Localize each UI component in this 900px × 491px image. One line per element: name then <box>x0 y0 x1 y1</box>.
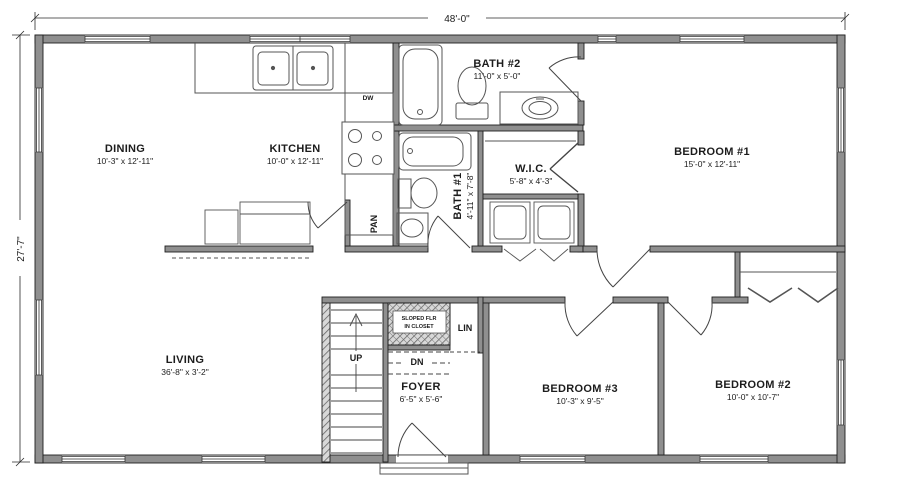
svg-text:10'-0" x 10'-7": 10'-0" x 10'-7" <box>727 392 779 402</box>
sloped-floor-label-line1: SLOPED FLR <box>402 316 437 322</box>
svg-text:W.I.C.: W.I.C. <box>515 163 547 175</box>
svg-text:PAN: PAN <box>369 215 379 233</box>
overall-width-dimension: 48'-0" <box>444 14 470 25</box>
room-label-pantry: PAN <box>369 215 379 233</box>
linen-label: LIN <box>458 323 473 333</box>
overall-depth-dimension: 27'-7" <box>16 236 27 262</box>
bath2-door <box>549 57 581 101</box>
svg-text:DINING: DINING <box>105 143 145 155</box>
bedroom1-door <box>597 249 650 287</box>
room-label-wic: W.I.C. 5'-8" x 4'-3" <box>510 163 553 186</box>
door-swings <box>308 57 712 457</box>
svg-text:4'-11" x 7'-8": 4'-11" x 7'-8" <box>465 173 475 220</box>
svg-text:15'-0" x 12'-11": 15'-0" x 12'-11" <box>684 159 740 169</box>
svg-text:10'-3" x 9'-5": 10'-3" x 9'-5" <box>556 396 604 406</box>
stair-side-wall <box>322 303 330 462</box>
svg-text:FOYER: FOYER <box>401 381 440 393</box>
bedroom3-door <box>565 302 613 336</box>
dryer <box>534 202 574 243</box>
room-label-bedroom3: BEDROOM #3 10'-3" x 9'-5" <box>542 383 618 406</box>
dining-hutch <box>240 202 310 244</box>
bath2-fixtures <box>399 45 578 125</box>
svg-text:6'-5" x 5'-6": 6'-5" x 5'-6" <box>400 394 443 404</box>
laundry-bifold-doors <box>504 249 568 261</box>
room-label-foyer: FOYER 6'-5" x 5'-6" <box>400 381 443 404</box>
floor-plan-drawing: 48'-0" 27'-7" <box>0 0 900 491</box>
front-door-opening <box>396 455 448 462</box>
svg-text:LIVING: LIVING <box>166 354 204 366</box>
stove <box>342 122 394 174</box>
svg-text:BEDROOM #1: BEDROOM #1 <box>674 146 750 158</box>
closet-bifold-doors <box>748 288 838 302</box>
stairs-up <box>331 310 382 453</box>
room-label-bath2: BATH #2 11'-0" x 5'-0" <box>473 58 520 81</box>
svg-text:BATH #1: BATH #1 <box>452 172 464 219</box>
room-label-bath1: BATH #1 4'-11" x 7'-8" <box>452 172 475 219</box>
svg-text:10'-3" x 12'-11": 10'-3" x 12'-11" <box>97 156 153 166</box>
dn-label: DN <box>411 357 424 367</box>
pantry-door <box>308 202 347 228</box>
bedroom2-closet <box>740 272 838 302</box>
sloped-floor-label-line2: IN CLOSET <box>404 324 434 330</box>
svg-text:BATH #2: BATH #2 <box>473 58 520 70</box>
svg-text:BEDROOM #2: BEDROOM #2 <box>715 379 791 391</box>
svg-text:BEDROOM #3: BEDROOM #3 <box>542 383 618 395</box>
svg-text:10'-0" x 12'-11": 10'-0" x 12'-11" <box>267 156 323 166</box>
bath1-door <box>428 216 470 248</box>
floor-plan-page: 48'-0" 27'-7" <box>0 0 900 491</box>
closet-laundry-fixtures <box>485 141 576 261</box>
room-label-bedroom1: BEDROOM #1 15'-0" x 12'-11" <box>674 146 750 169</box>
dishwasher-label: DW <box>363 95 375 102</box>
toilet-1-tank <box>398 179 411 208</box>
room-label-bedroom2: BEDROOM #2 10'-0" x 10'-7" <box>715 379 791 402</box>
bathtub-1 <box>399 133 471 170</box>
svg-text:5'-8" x 4'-3": 5'-8" x 4'-3" <box>510 176 553 186</box>
room-label-kitchen: KITCHEN 10'-0" x 12'-11" <box>267 143 323 166</box>
toilet-1-bowl <box>411 178 437 208</box>
bathtub-2 <box>399 45 442 125</box>
bedroom2-door <box>668 302 712 335</box>
front-door <box>398 423 446 457</box>
kitchen-fixtures <box>195 43 394 235</box>
svg-text:11'-0" x 5'-0": 11'-0" x 5'-0" <box>474 71 521 81</box>
svg-text:36'-8" x 3'-2": 36'-8" x 3'-2" <box>161 367 209 377</box>
front-stoop <box>380 463 468 474</box>
room-label-dining: DINING 10'-3" x 12'-11" <box>97 143 153 166</box>
room-labels: DINING 10'-3" x 12'-11" KITCHEN 10'-0" x… <box>97 58 791 406</box>
wic-bifold-door <box>550 143 578 192</box>
room-label-living: LIVING 36'-8" x 3'-2" <box>161 354 209 377</box>
dining-cabinet <box>205 210 238 244</box>
washer <box>490 202 530 243</box>
svg-text:KITCHEN: KITCHEN <box>270 143 321 155</box>
up-label: UP <box>350 353 363 363</box>
